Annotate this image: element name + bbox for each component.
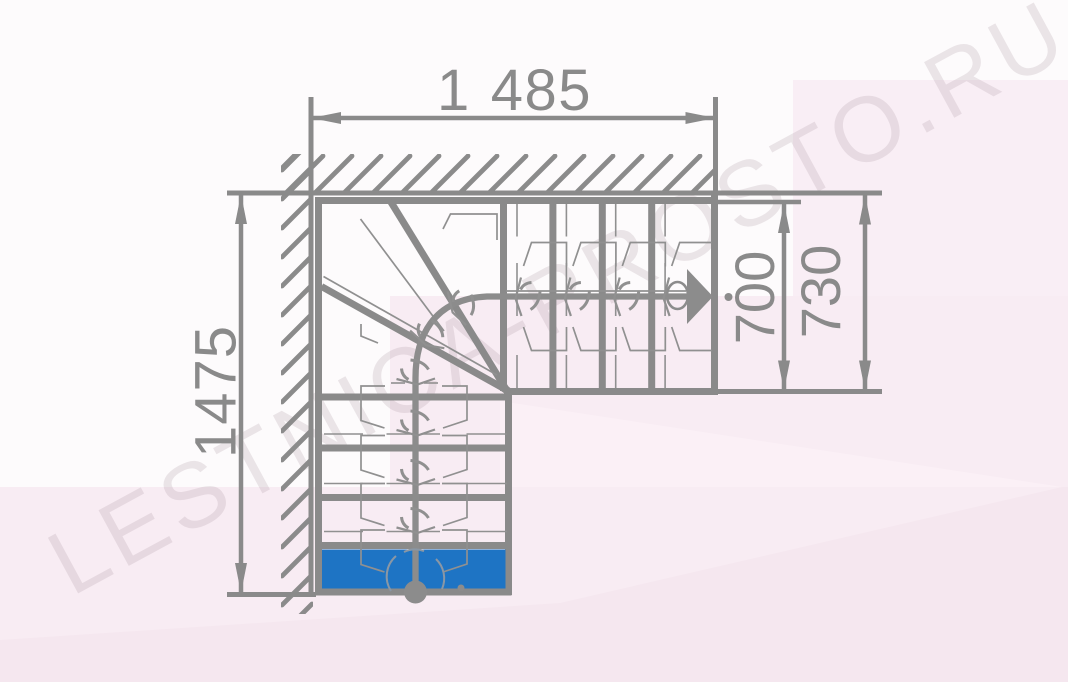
svg-text:700: 700 — [723, 251, 786, 344]
svg-text:730: 730 — [789, 245, 852, 338]
svg-text:1485: 1485 — [437, 58, 592, 123]
svg-text:1475: 1475 — [184, 325, 249, 458]
